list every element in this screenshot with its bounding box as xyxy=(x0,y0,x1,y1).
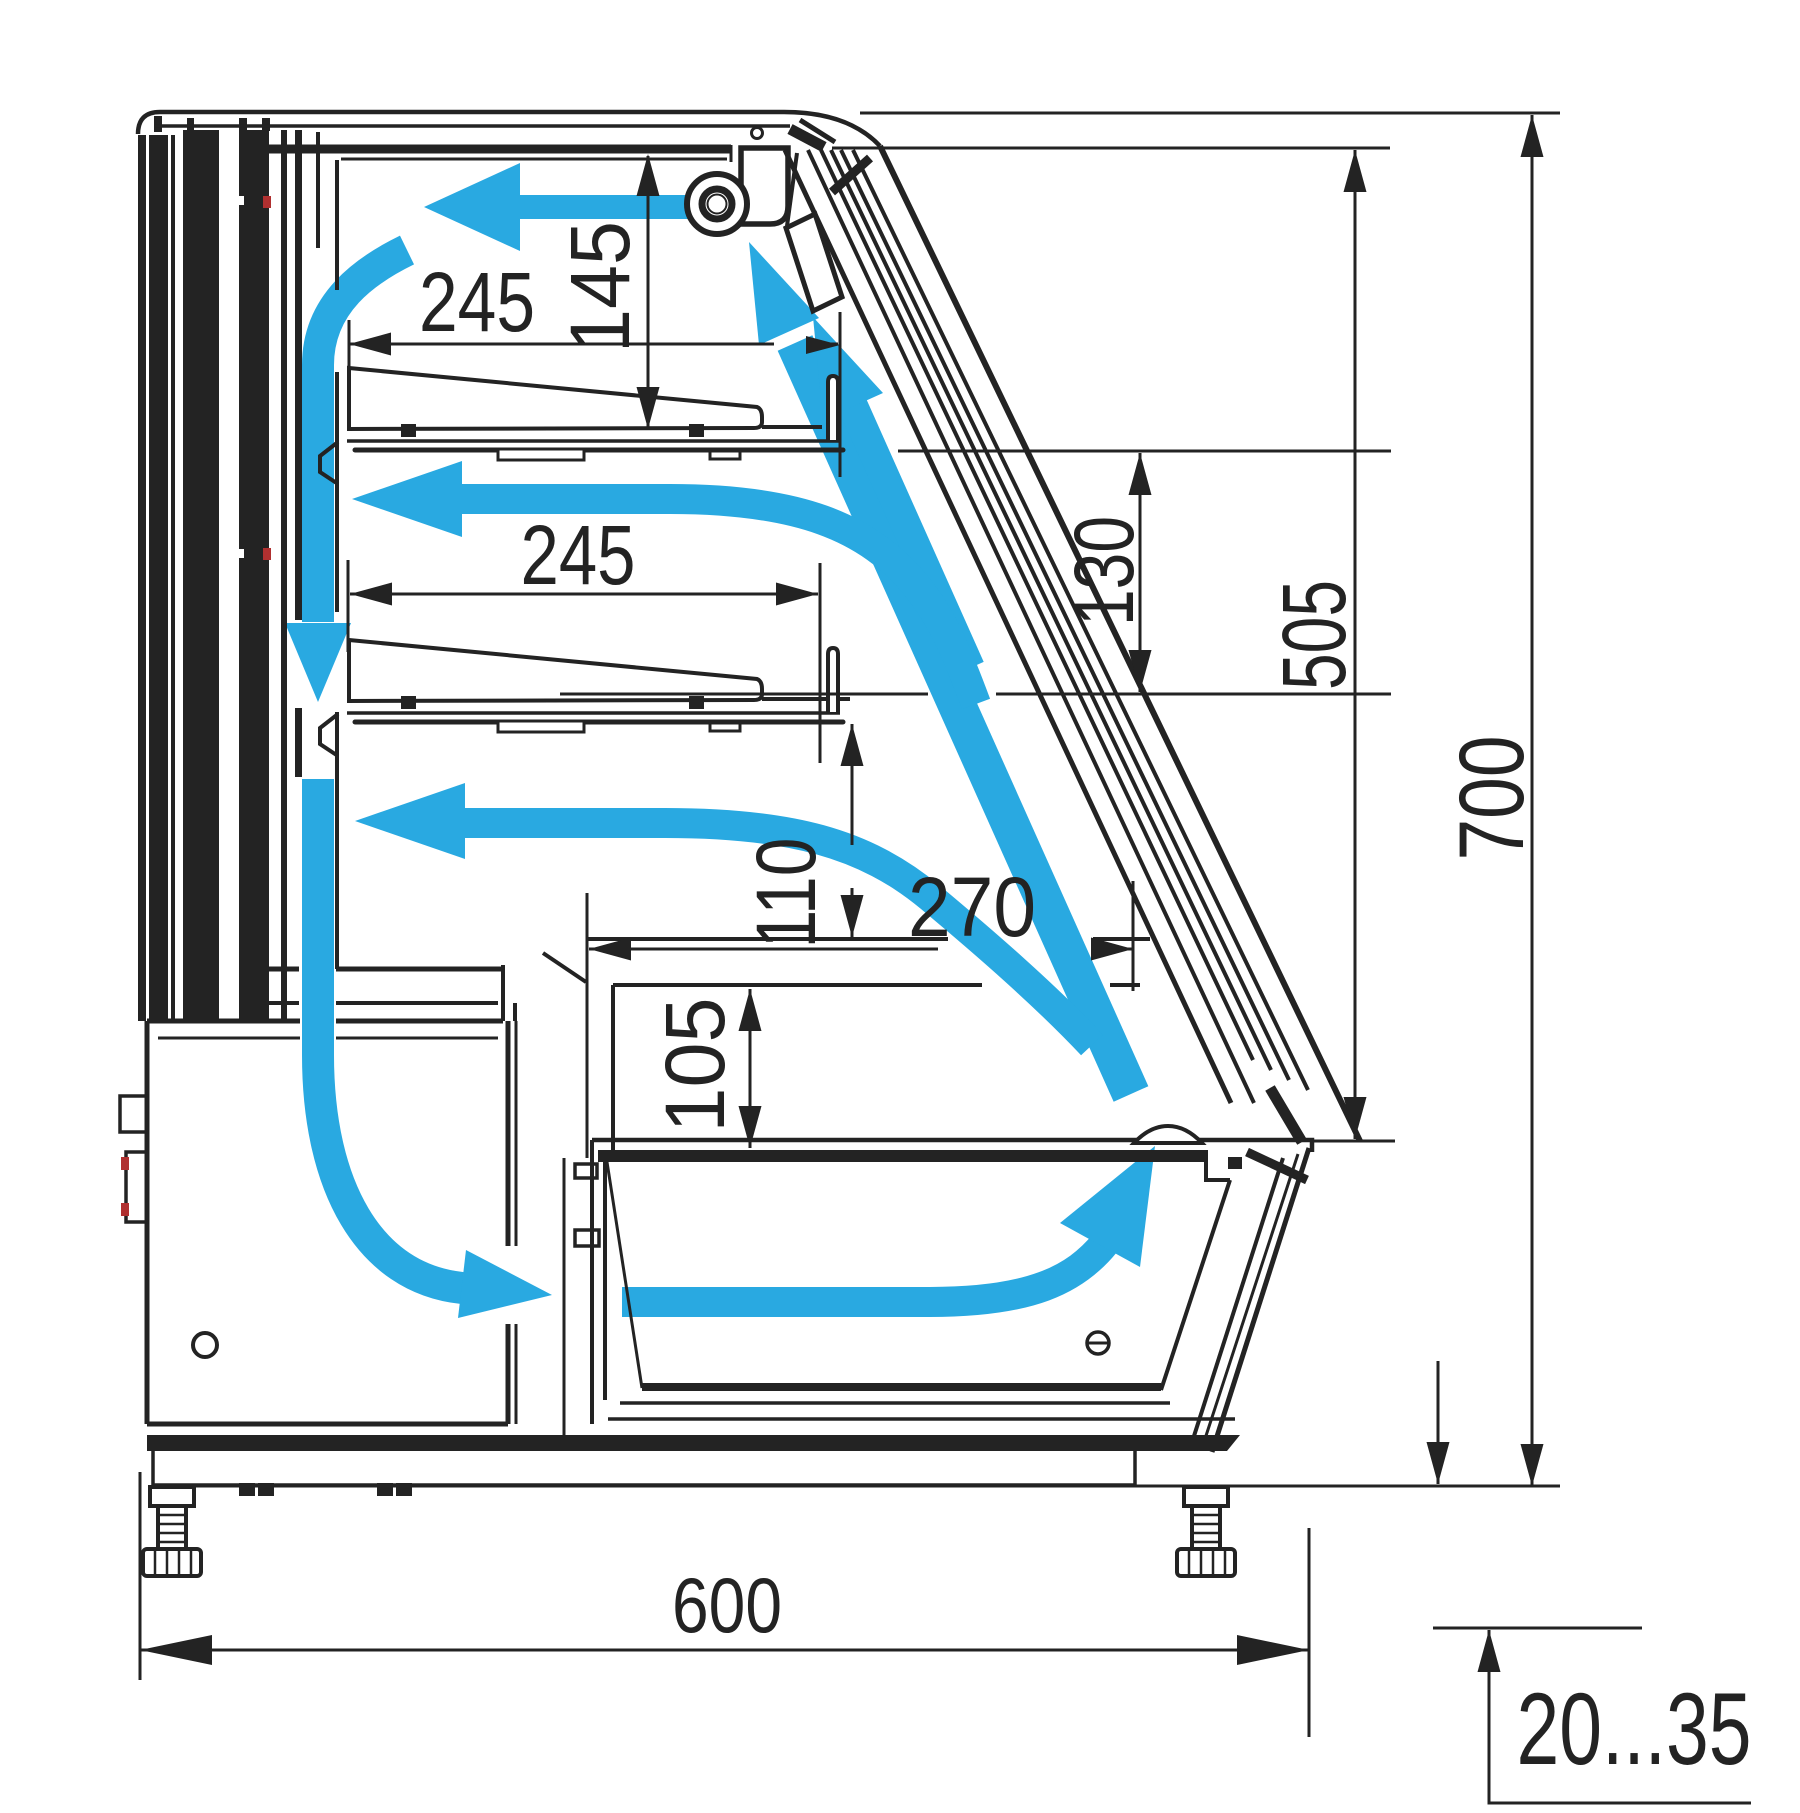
svg-text:145: 145 xyxy=(553,221,647,353)
svg-text:600: 600 xyxy=(672,1561,782,1649)
svg-text:245: 245 xyxy=(419,255,535,349)
svg-text:110: 110 xyxy=(739,838,833,949)
svg-text:700: 700 xyxy=(1441,736,1543,861)
svg-text:105: 105 xyxy=(648,998,742,1133)
svg-text:505: 505 xyxy=(1265,580,1365,690)
svg-text:270: 270 xyxy=(908,860,1036,954)
svg-text:245: 245 xyxy=(521,508,636,602)
svg-text:20...35: 20...35 xyxy=(1517,1672,1752,1786)
svg-text:130: 130 xyxy=(1057,516,1151,626)
